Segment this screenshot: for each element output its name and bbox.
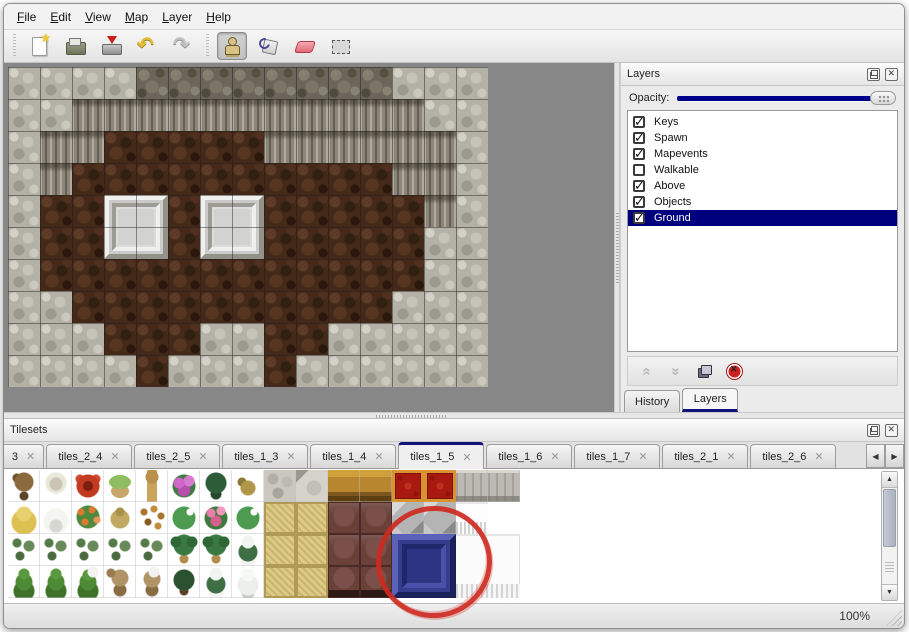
tileset-tile-gray3d[interactable] [424,502,456,534]
map-tile[interactable] [136,291,168,323]
menu-item-edit[interactable]: Edit [43,7,78,27]
map-tile[interactable] [328,355,360,387]
delete-layer-button[interactable] [721,359,747,383]
tileset-tile-stump[interactable] [104,470,136,502]
tileset-tab-tiles_2_1[interactable]: tiles_2_1✕ [662,444,748,468]
layer-visibility-checkbox[interactable] [633,116,645,128]
tileset-tile-bushCone[interactable] [40,566,72,598]
map-tile[interactable] [424,163,456,195]
map-tile[interactable] [360,355,392,387]
opacity-slider[interactable] [677,90,896,106]
map-tile[interactable] [232,259,264,291]
map-tile[interactable] [296,227,328,259]
map-tile[interactable] [360,131,392,163]
layer-visibility-checkbox[interactable] [633,180,645,192]
map-tile[interactable] [72,227,104,259]
map-tile[interactable] [360,163,392,195]
layer-row-above[interactable]: Above [628,178,897,194]
map-tile[interactable] [392,355,424,387]
map-tile[interactable] [168,131,200,163]
tileset-tab-label: tiles_2_1 [674,451,718,463]
layer-row-mapevents[interactable]: Mapevents [628,146,897,162]
map-tile[interactable] [104,259,136,291]
delete-circle-icon [727,364,742,379]
tileset-tab-label: tiles_1_4 [322,451,366,463]
tileset-tile-leather[interactable] [328,534,360,566]
duplicate-icon [698,365,712,378]
map-tile[interactable] [104,291,136,323]
map-tile[interactable] [392,131,424,163]
float-panel-icon[interactable] [867,424,880,437]
layers-dock: Layers Opacity: KeysSpawnMapeventsWalkab… [620,63,904,412]
open-folder-icon [64,35,86,57]
map-tile[interactable] [136,99,168,131]
close-panel-icon[interactable] [885,424,898,437]
select-tool-button[interactable] [325,32,355,60]
tileset-tile-palmDark[interactable] [200,470,232,502]
map-tile[interactable] [360,99,392,131]
tileset-tile-sprouts[interactable] [8,534,40,566]
tileset-tile-mat[interactable] [296,566,328,598]
map-tile[interactable] [136,163,168,195]
new-map-button[interactable] [24,32,54,60]
raise-layer-button[interactable]: « [634,359,660,383]
tileset-tile-carpet[interactable] [392,470,424,502]
duplicate-layer-button[interactable] [692,359,718,383]
map-tile[interactable] [360,259,392,291]
toolbar-grip-icon [11,34,18,58]
map-tile[interactable] [72,131,104,163]
tileset-tab-tiles_2_4[interactable]: tiles_2_4✕ [46,444,132,468]
map-tile[interactable] [392,323,424,355]
map-tile[interactable] [72,323,104,355]
tileset-tile-flowersOrange[interactable] [72,502,104,534]
map-tile[interactable] [456,163,488,195]
map-tile[interactable] [264,131,296,163]
map-tile[interactable] [8,227,40,259]
tileset-tab-tiles_1_4[interactable]: tiles_1_4✕ [310,444,396,468]
opacity-slider-handle[interactable] [870,91,896,105]
selection-rect-icon [329,35,351,57]
map-tile[interactable] [392,291,424,323]
tileset-tab-tiles_1_7[interactable]: tiles_1_7✕ [574,444,660,468]
map-tile[interactable] [168,355,200,387]
splitter-grip-icon [616,213,619,283]
map-tile[interactable] [296,291,328,323]
tileset-tile-wood[interactable] [328,470,360,502]
tileset-content[interactable]: ▲ ▼ [4,469,904,603]
map-tile[interactable] [104,131,136,163]
map-tile[interactable] [264,99,296,131]
map-tile[interactable] [232,355,264,387]
map-tile[interactable] [424,355,456,387]
map-tile[interactable] [40,323,72,355]
map-tile[interactable] [296,259,328,291]
tileset-tile-treeBare[interactable] [8,470,40,502]
save-button[interactable] [96,32,126,60]
map-tile[interactable] [424,323,456,355]
layer-visibility-checkbox[interactable] [633,164,645,176]
map-tile[interactable] [296,163,328,195]
tab-close-icon[interactable]: ✕ [726,450,735,463]
tileset-tile-mat[interactable] [296,502,328,534]
map-tile[interactable] [232,323,264,355]
map-tile[interactable] [232,163,264,195]
map-tile[interactable] [200,99,232,131]
tab-close-icon[interactable]: ✕ [550,450,559,463]
tileset-tile-leather[interactable] [360,502,392,534]
tileset-tile-cobble[interactable] [264,470,296,502]
raised-block-tile[interactable] [104,195,168,259]
tileset-tile-sprouts[interactable] [136,534,168,566]
tab-scroll-left-icon[interactable]: ◀ [866,444,885,468]
map-tile[interactable] [296,323,328,355]
map-tile[interactable] [328,259,360,291]
map-tile[interactable] [136,259,168,291]
map-tile[interactable] [456,227,488,259]
map-tile[interactable] [136,323,168,355]
tab-close-icon[interactable]: ✕ [286,450,295,463]
map-tile[interactable] [392,163,424,195]
close-panel-icon[interactable] [885,68,898,81]
map-tile[interactable] [296,99,328,131]
tileset-tile-cobble2[interactable] [296,470,328,502]
map-tile[interactable] [40,67,72,99]
map-tile[interactable] [200,131,232,163]
layer-row-spawn[interactable]: Spawn [628,130,897,146]
tileset-tile-snowMound[interactable] [40,502,72,534]
undo-button[interactable] [132,32,162,60]
map-tile[interactable] [168,163,200,195]
scroll-up-icon[interactable]: ▲ [882,472,897,488]
layer-visibility-checkbox[interactable] [633,212,645,224]
map-tile[interactable] [360,195,392,227]
map-tile[interactable] [328,163,360,195]
resize-grip[interactable] [886,610,902,626]
map-tile[interactable] [104,323,136,355]
tileset-tile-mat[interactable] [296,534,328,566]
tileset-tab-tiles_1_5[interactable]: tiles_1_5✕ [398,442,484,469]
tileset-tile-leatherFoot[interactable] [328,566,360,598]
float-panel-icon[interactable] [867,68,880,81]
map-tile[interactable] [392,227,424,259]
fill-tool-button[interactable] [253,32,283,60]
tileset-tab-tiles_1_3[interactable]: tiles_1_3✕ [222,444,308,468]
tileset-tile-carpet[interactable] [424,470,456,502]
tileset-tile-pineSnow[interactable] [200,566,232,598]
map-tile[interactable] [136,355,168,387]
map-tile[interactable] [40,99,72,131]
map-tile[interactable] [456,259,488,291]
map-tile[interactable] [168,99,200,131]
tileset-tab-label: tiles_2_5 [146,451,190,463]
tileset-tile-palm[interactable] [200,534,232,566]
map-tile[interactable] [8,131,40,163]
open-button[interactable] [60,32,90,60]
map-tile[interactable] [8,67,40,99]
map-tile[interactable] [456,355,488,387]
map-tile[interactable] [456,323,488,355]
map-tile[interactable] [200,291,232,323]
tileset-tile-lilyPad[interactable] [232,502,264,534]
splitter-grip-icon [376,415,446,418]
map-tile[interactable] [360,291,392,323]
map-tile[interactable] [232,99,264,131]
map-tile[interactable] [104,67,136,99]
tileset-tile-curtain-block[interactable] [456,534,520,598]
menu-item-file[interactable]: File [10,7,43,27]
layer-row-keys[interactable]: Keys [628,114,897,130]
tileset-tile-mat[interactable] [264,502,296,534]
map-viewport[interactable] [4,63,614,412]
map-tile[interactable] [232,291,264,323]
paint-bucket-icon [257,35,279,57]
map-tile[interactable] [200,163,232,195]
new-page-icon [28,35,50,57]
tileset-tile-stoneGray[interactable] [488,470,520,502]
tileset-tile-palm[interactable] [168,534,200,566]
tileset-tile-leatherFoot[interactable] [360,566,392,598]
map-tile[interactable] [72,195,104,227]
tileset-tab-tiles_2_6[interactable]: tiles_2_6✕ [750,444,836,468]
map-tile[interactable] [264,227,296,259]
tileset-tile-bushConeSnow[interactable] [72,566,104,598]
layer-visibility-checkbox[interactable] [633,196,645,208]
map-tile[interactable] [328,67,360,99]
map-tile[interactable] [264,67,296,99]
map-tile[interactable] [424,195,456,227]
map-tile[interactable] [296,195,328,227]
map-tile[interactable] [72,291,104,323]
map-tile[interactable] [168,259,200,291]
eraser-tool-button[interactable] [289,32,319,60]
map-tile[interactable] [264,323,296,355]
map-tile[interactable] [8,99,40,131]
map-tile[interactable] [392,67,424,99]
tileset-tile-mat[interactable] [264,566,296,598]
map-tile[interactable] [360,323,392,355]
dock-tab-layers[interactable]: Layers [682,388,738,412]
map-tile[interactable] [136,67,168,99]
tileset-tile-wood[interactable] [360,470,392,502]
tab-close-icon[interactable]: ✕ [198,450,207,463]
map-tile[interactable] [200,355,232,387]
tab-close-icon[interactable]: ✕ [638,450,647,463]
layer-row-walkable[interactable]: Walkable [628,162,897,178]
tileset-tile-leather[interactable] [328,502,360,534]
map-tile[interactable] [456,291,488,323]
tileset-tab-3[interactable]: 3✕ [4,444,44,468]
tab-close-icon[interactable]: ✕ [110,450,119,463]
tileset-tile-leaves[interactable] [136,502,168,534]
zoom-level: 100% [839,609,870,623]
raised-block-tile[interactable] [200,195,264,259]
map-tile[interactable] [8,291,40,323]
tileset-tile-sprouts[interactable] [104,534,136,566]
lower-layer-button[interactable]: » [663,359,689,383]
map-tile[interactable] [8,323,40,355]
map-tile[interactable] [40,259,72,291]
stamp-tool-button[interactable] [217,32,247,60]
map-tile[interactable] [168,227,200,259]
undo-arrow-icon [136,35,158,57]
map-tile[interactable] [40,291,72,323]
tileset-tile-sprouts[interactable] [72,534,104,566]
map-tile[interactable] [8,163,40,195]
vertical-splitter[interactable] [614,63,620,412]
map-tile[interactable] [40,227,72,259]
map-tile[interactable] [328,99,360,131]
menu-item-map[interactable]: Map [118,7,155,27]
map-tile[interactable] [264,355,296,387]
tab-close-icon[interactable]: ✕ [374,450,383,463]
map-tile[interactable] [40,195,72,227]
map-tile[interactable] [232,67,264,99]
tileset-tile-blue-block-selected[interactable] [392,534,456,598]
map-tile[interactable] [456,131,488,163]
tileset-tile-bushCone[interactable] [8,566,40,598]
map-tile[interactable] [424,131,456,163]
layer-row-objects[interactable]: Objects [628,194,897,210]
map-tile[interactable] [360,67,392,99]
menu-item-view[interactable]: View [78,7,118,27]
map-tile[interactable] [232,131,264,163]
tab-scroll-right-icon[interactable]: ▶ [885,444,904,468]
menu-item-layer[interactable]: Layer [155,7,199,27]
tileset-tile-mat[interactable] [264,534,296,566]
tileset-tab-tiles_1_6[interactable]: tiles_1_6✕ [486,444,572,468]
map-tile[interactable] [328,227,360,259]
tileset-tile-flowerRed[interactable] [72,470,104,502]
tileset-scrollbar[interactable]: ▲ ▼ [881,471,898,601]
redo-button[interactable] [168,32,198,60]
layer-label: Mapevents [654,148,708,160]
map-tile[interactable] [40,355,72,387]
tab-close-icon[interactable]: ✕ [462,451,471,464]
map-tile[interactable] [264,163,296,195]
tileset-tile-treeDark[interactable] [168,566,200,598]
tileset-tile-stoneGray[interactable] [456,470,488,502]
map-tile[interactable] [72,99,104,131]
map-tile[interactable] [40,163,72,195]
tileset-tile-trunk[interactable] [136,470,168,502]
tileset-tile-fringe[interactable] [456,502,488,534]
map-tile[interactable] [104,99,136,131]
map-tile[interactable] [424,99,456,131]
tileset-tile-treeDead[interactable] [104,566,136,598]
map-tile[interactable] [8,355,40,387]
map-tile[interactable] [72,163,104,195]
layer-label: Spawn [654,132,688,144]
map-tile[interactable] [328,323,360,355]
map-tile[interactable] [456,67,488,99]
map-tile[interactable] [168,67,200,99]
status-bar: 100% [4,603,904,628]
tileset-tile-lilyPad[interactable] [168,502,200,534]
map-tile[interactable] [264,291,296,323]
tileset-tile-leather[interactable] [360,534,392,566]
map-tile[interactable] [392,99,424,131]
map-tile[interactable] [104,355,136,387]
map-tile[interactable] [328,195,360,227]
map-tile[interactable] [456,195,488,227]
map-tile[interactable] [168,195,200,227]
tileset-tab-label: tiles_1_7 [586,451,630,463]
map-tile[interactable] [264,259,296,291]
map-tile[interactable] [328,291,360,323]
tileset-tile-roses[interactable] [200,502,232,534]
map-tile[interactable] [360,227,392,259]
tileset-tile-blank[interactable] [488,502,520,534]
tileset-tile-sprouts[interactable] [40,534,72,566]
dock-tab-history[interactable]: History [624,390,680,412]
map-tile[interactable] [8,195,40,227]
map-tile[interactable] [104,163,136,195]
layer-visibility-checkbox[interactable] [633,148,645,160]
map-tile[interactable] [72,259,104,291]
map-tile[interactable] [40,131,72,163]
map-tile[interactable] [200,259,232,291]
tileset-tile-grassDry[interactable] [104,502,136,534]
map-tile[interactable] [424,259,456,291]
map-tile[interactable] [200,67,232,99]
map-tile[interactable] [392,259,424,291]
map-tile[interactable] [392,195,424,227]
map-tile[interactable] [8,259,40,291]
tileset-tile-pineSnow[interactable] [232,534,264,566]
map-tile[interactable] [424,291,456,323]
tileset-tab-label: tiles_1_5 [410,451,454,463]
map-tile[interactable] [424,227,456,259]
layer-visibility-checkbox[interactable] [633,132,645,144]
map-tile[interactable] [296,355,328,387]
map-tile[interactable] [264,195,296,227]
tileset-tile-treeDeadSnow[interactable] [136,566,168,598]
tileset-tab-bar: 3✕tiles_2_4✕tiles_2_5✕tiles_1_3✕tiles_1_… [4,442,904,469]
menu-item-help[interactable]: Help [199,7,238,27]
tileset-tile-pineSnowWhite[interactable] [232,566,264,598]
map-tile[interactable] [200,323,232,355]
horizontal-splitter[interactable] [4,412,904,419]
opacity-row: Opacity: [621,86,904,110]
scrollbar-thumb[interactable] [883,489,896,547]
map-tile[interactable] [456,99,488,131]
tileset-tile-bushPink[interactable] [168,470,200,502]
tileset-tab-label: tiles_2_6 [762,451,806,463]
layers-panel-title: Layers [627,68,862,80]
map-tile[interactable] [168,323,200,355]
layer-row-ground[interactable]: Ground [628,210,897,226]
tab-close-icon[interactable]: ✕ [814,450,823,463]
map-tile[interactable] [72,355,104,387]
map-tile[interactable] [424,67,456,99]
tileset-tile-treeWhite[interactable] [40,470,72,502]
map-tile[interactable] [328,131,360,163]
map-tile[interactable] [72,67,104,99]
map-tile[interactable] [136,131,168,163]
tileset-tab-tiles_2_5[interactable]: tiles_2_5✕ [134,444,220,468]
layer-list: KeysSpawnMapeventsWalkableAboveObjectsGr… [627,110,898,352]
tileset-tile-gray3d[interactable] [392,502,424,534]
tileset-tile-plantSmall[interactable] [232,470,264,502]
map-tile[interactable] [296,67,328,99]
scroll-down-icon[interactable]: ▼ [882,584,897,600]
tab-close-icon[interactable]: ✕ [26,450,35,463]
map-tile[interactable] [168,291,200,323]
tileset-tile-hay[interactable] [8,502,40,534]
map-canvas[interactable] [8,67,488,387]
map-tile[interactable] [296,131,328,163]
